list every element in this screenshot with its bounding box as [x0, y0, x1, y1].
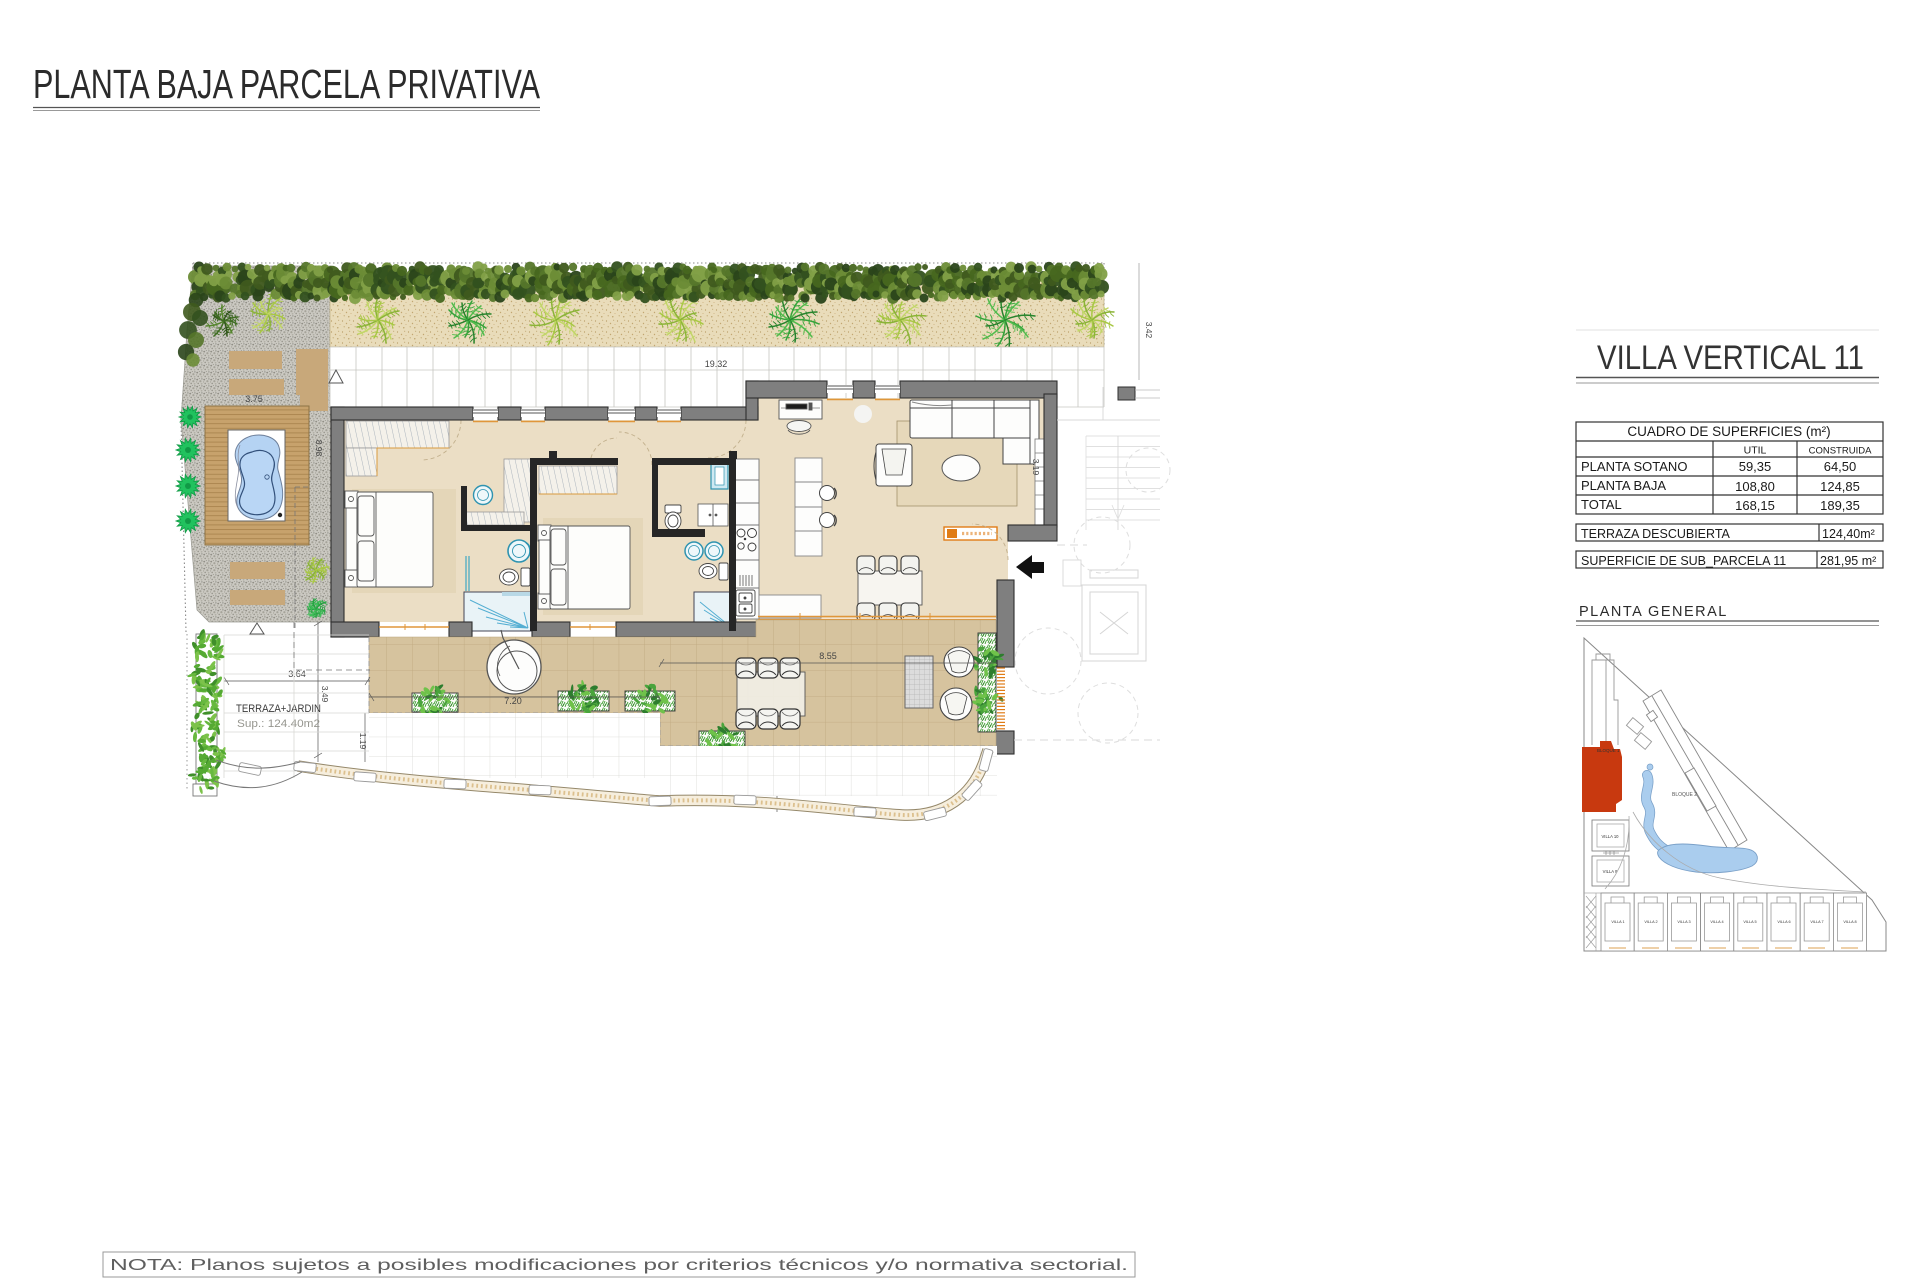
svg-text:281,95 m²: 281,95 m²	[1820, 554, 1876, 568]
svg-text:CONSTRUIDA: CONSTRUIDA	[1809, 446, 1872, 457]
svg-text:UTIL: UTIL	[1744, 445, 1767, 457]
svg-text:CUADRO DE SUPERFICIES (m²): CUADRO DE SUPERFICIES (m²)	[1627, 424, 1830, 439]
svg-text:Sup.: 124.40m2: Sup.: 124.40m2	[237, 718, 320, 730]
svg-text:189,35: 189,35	[1820, 498, 1860, 513]
svg-text:PLANTA GENERAL: PLANTA GENERAL	[1579, 604, 1728, 620]
svg-text:64,50: 64,50	[1824, 459, 1857, 474]
svg-text:SUPERFICIE DE SUB_PARCELA 11: SUPERFICIE DE SUB_PARCELA 11	[1581, 554, 1786, 568]
svg-text:TOTAL: TOTAL	[1581, 497, 1622, 512]
svg-text:VILLA 3: VILLA 3	[1677, 920, 1690, 924]
svg-text:VILLA 4: VILLA 4	[1710, 920, 1723, 924]
svg-text:VILLA VERTICAL 11: VILLA VERTICAL 11	[1597, 339, 1864, 377]
svg-text:124,85: 124,85	[1820, 479, 1860, 494]
svg-text:VILLA 2: VILLA 2	[1644, 920, 1657, 924]
svg-text:3.42: 3.42	[1144, 322, 1154, 339]
svg-text:3.75: 3.75	[245, 394, 263, 404]
svg-text:1.19: 1.19	[358, 733, 368, 750]
svg-text:TERRAZA DESCUBIERTA: TERRAZA DESCUBIERTA	[1581, 527, 1731, 541]
svg-text:108,80: 108,80	[1735, 479, 1775, 494]
svg-text:59,35: 59,35	[1739, 459, 1772, 474]
svg-text:VILLA 8: VILLA 8	[1843, 920, 1856, 924]
svg-text:168,15: 168,15	[1735, 498, 1775, 513]
svg-text:BLOQUE 1: BLOQUE 1	[1597, 748, 1620, 753]
svg-text:8.98: 8.98	[314, 440, 324, 457]
svg-text:19.32: 19.32	[705, 359, 728, 369]
svg-text:VILLA 1: VILLA 1	[1611, 920, 1624, 924]
svg-text:PLANTA BAJA PARCELA PRIVATIVA: PLANTA BAJA PARCELA PRIVATIVA	[33, 61, 540, 107]
svg-text:VILLA 9: VILLA 9	[1603, 869, 1618, 874]
svg-text:VILLA 6: VILLA 6	[1777, 920, 1790, 924]
svg-text:VILLA 7: VILLA 7	[1810, 920, 1823, 924]
svg-text:124,40m²: 124,40m²	[1822, 527, 1875, 541]
svg-text:7.20: 7.20	[504, 696, 522, 706]
svg-text:VILLA 10: VILLA 10	[1602, 834, 1620, 839]
svg-text:PLANTA BAJA: PLANTA BAJA	[1581, 478, 1666, 493]
svg-text:3.19: 3.19	[1031, 459, 1041, 476]
svg-text:PLANTA SOTANO: PLANTA SOTANO	[1581, 459, 1687, 474]
svg-text:VILLA 5: VILLA 5	[1743, 920, 1756, 924]
svg-text:NOTA: Planos sujetos a posible: NOTA: Planos sujetos a posibles modifica…	[110, 1257, 1128, 1274]
svg-text:3.49: 3.49	[320, 686, 330, 703]
svg-text:BLOQUE 2: BLOQUE 2	[1672, 792, 1697, 798]
svg-text:8.55: 8.55	[819, 651, 837, 661]
